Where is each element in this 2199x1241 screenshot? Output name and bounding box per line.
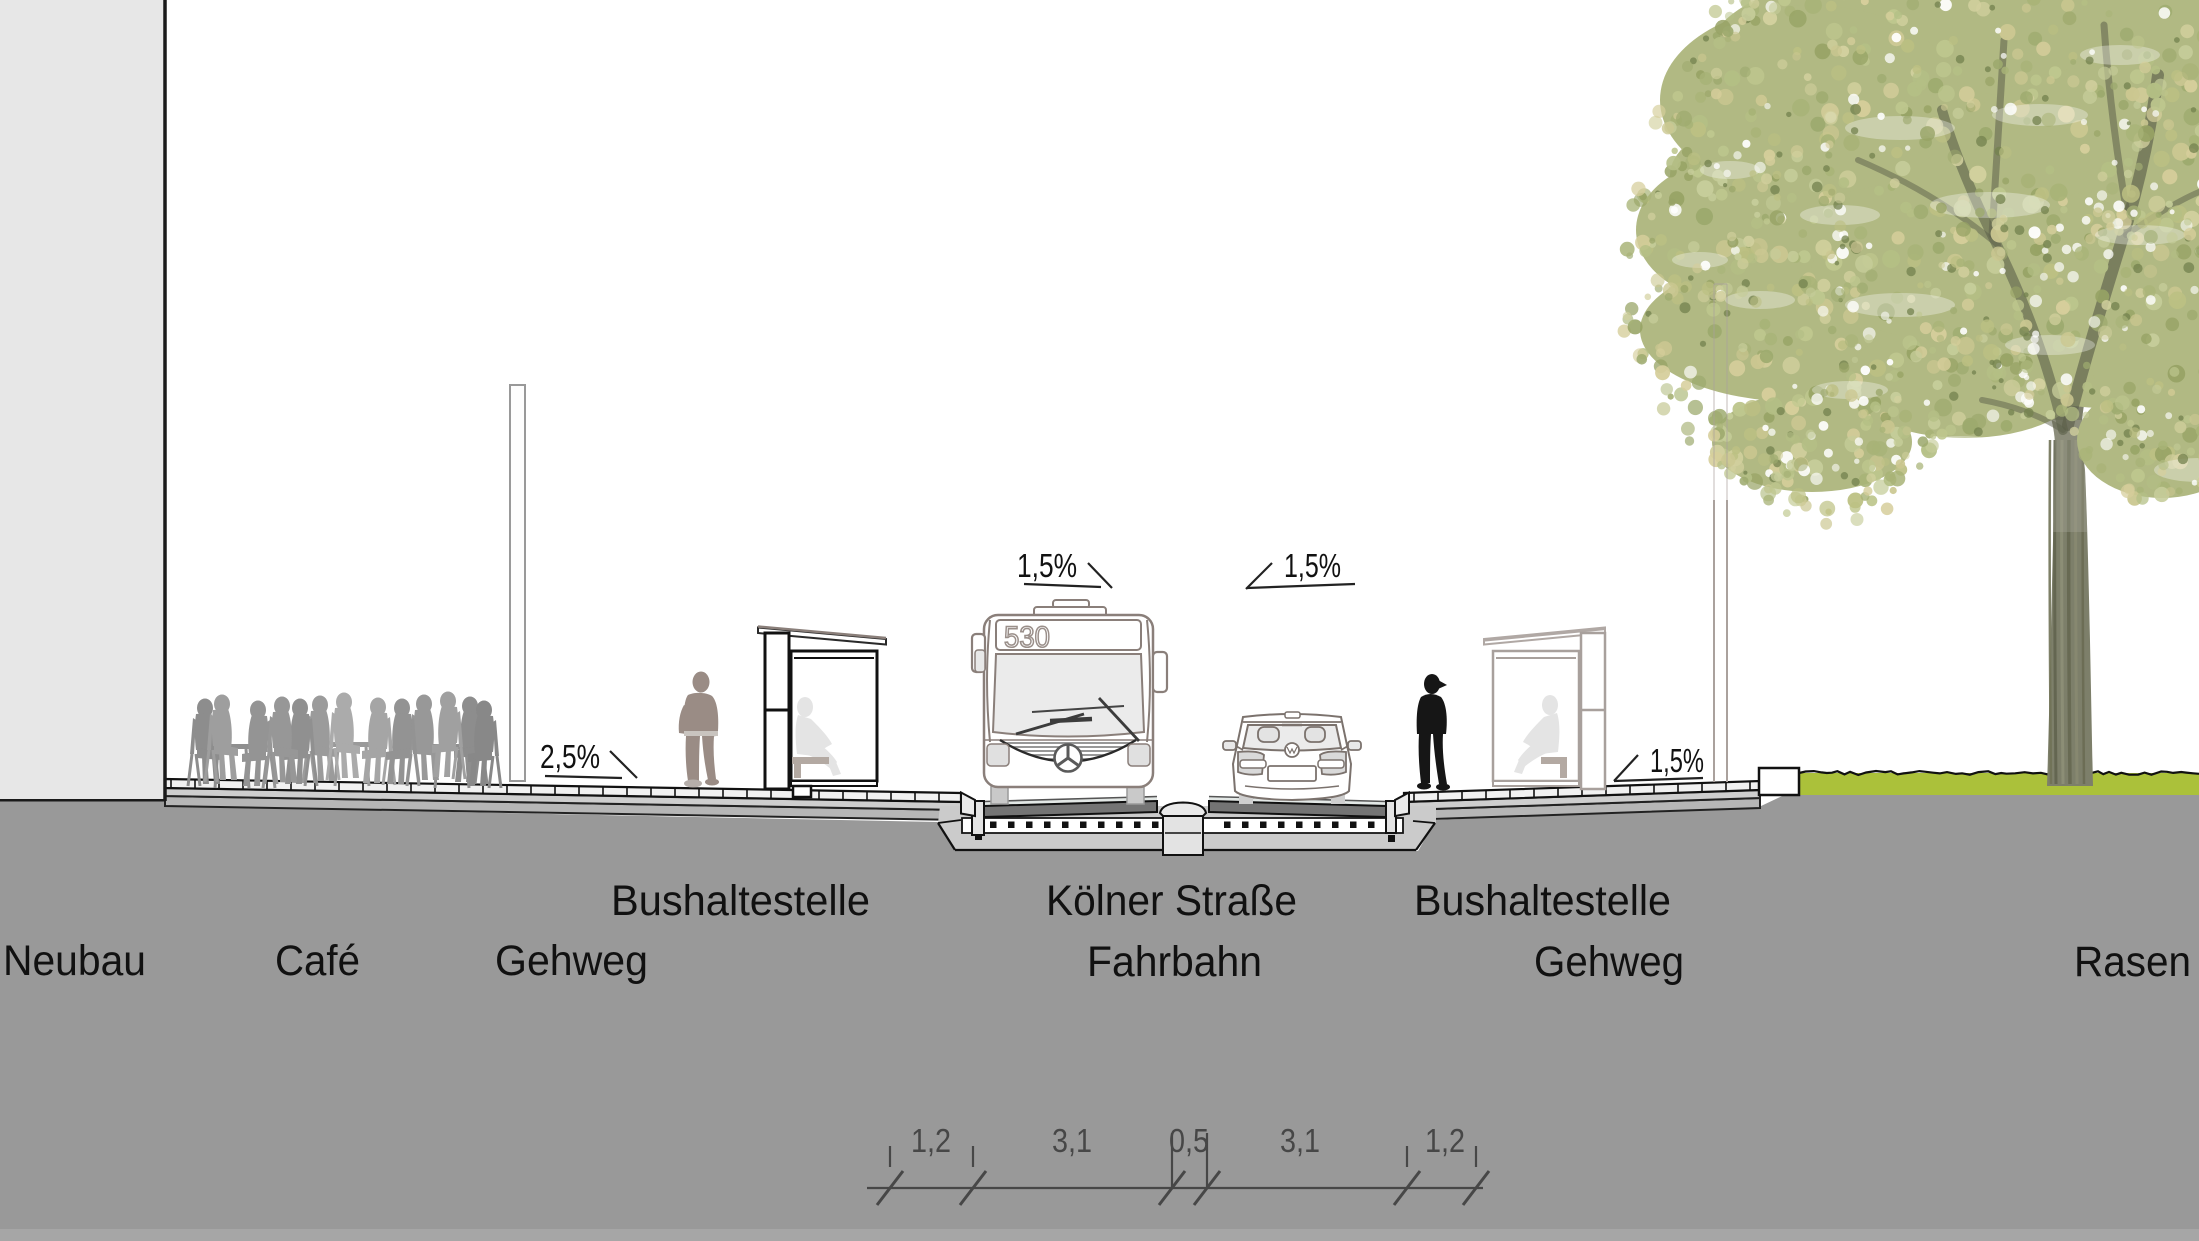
svg-text:1,2: 1,2 <box>1425 1122 1465 1159</box>
svg-text:1,5%: 1,5% <box>1017 547 1077 584</box>
svg-text:1,5%: 1,5% <box>1284 547 1341 584</box>
svg-text:0,5: 0,5 <box>1169 1122 1209 1159</box>
svg-text:Bushaltestelle: Bushaltestelle <box>611 877 870 925</box>
svg-text:Gehweg: Gehweg <box>495 937 648 985</box>
svg-text:1,5%: 1,5% <box>1650 742 1704 779</box>
svg-text:Fahrbahn: Fahrbahn <box>1087 938 1262 986</box>
svg-text:Neubau: Neubau <box>3 937 146 985</box>
svg-text:Bushaltestelle: Bushaltestelle <box>1414 877 1671 925</box>
svg-text:3,1: 3,1 <box>1052 1122 1092 1159</box>
svg-text:3,1: 3,1 <box>1280 1122 1320 1159</box>
svg-text:Gehweg: Gehweg <box>1534 938 1684 986</box>
svg-text:Café: Café <box>275 937 360 985</box>
svg-text:1,2: 1,2 <box>911 1122 951 1159</box>
svg-text:Kölner Straße: Kölner Straße <box>1046 877 1297 925</box>
svg-text:Rasen: Rasen <box>2074 938 2191 986</box>
svg-text:2,5%: 2,5% <box>540 738 600 775</box>
svg-text:530: 530 <box>1004 621 1050 654</box>
